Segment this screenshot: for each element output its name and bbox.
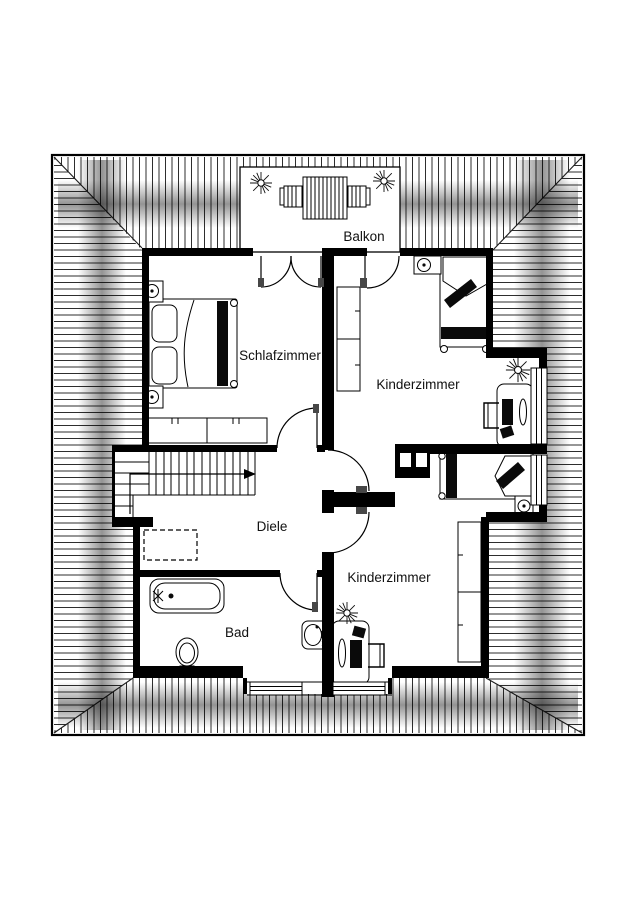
- wall-top-left: [142, 248, 253, 256]
- wall-right-upper: [486, 248, 493, 353]
- wall-niche: [334, 492, 395, 507]
- room-label-bedroom: Schlafzimmer: [239, 348, 321, 363]
- bathtub: [150, 579, 224, 613]
- room-label-balcony: Balkon: [343, 229, 384, 244]
- shelf: [337, 287, 360, 391]
- wall-center-lower: [322, 552, 334, 670]
- desk-top-room: [497, 384, 533, 447]
- wall-bath-top: [133, 570, 280, 577]
- single-bed-top: [440, 254, 490, 353]
- room-label-kids-room-top: Kinderzimmer: [376, 377, 460, 392]
- floor-plan-drawing: Balkon Schlafzimmer Kinderzimmer Diele K…: [0, 0, 636, 900]
- room-label-hallway: Diele: [257, 519, 288, 534]
- wall-stair-left: [112, 445, 115, 525]
- wall-bath-left: [133, 517, 140, 678]
- wall-bath-bottom: [133, 666, 243, 678]
- radiator: [414, 256, 441, 274]
- window: [250, 682, 302, 695]
- window: [531, 368, 547, 444]
- tub-drain: [169, 594, 174, 599]
- wall-kids-divider: [430, 444, 547, 454]
- wall-top-right: [400, 248, 493, 256]
- window: [531, 455, 547, 505]
- single-bed-bottom: [439, 453, 533, 499]
- double-bed: [149, 299, 238, 388]
- balcony-chair-right: [348, 186, 370, 207]
- wall-recess-right-stub: [388, 678, 392, 694]
- wall-bedroom-bottom: [112, 445, 277, 452]
- chimney: [395, 444, 430, 478]
- wall-kids-bottom: [392, 666, 489, 678]
- balcony-chair-left: [280, 186, 302, 207]
- floor-plan-page: Balkon Schlafzimmer Kinderzimmer Diele K…: [0, 0, 636, 900]
- wardrobe: [148, 418, 267, 443]
- wall-bay-a: [539, 358, 547, 368]
- wall-center-mid: [322, 490, 334, 513]
- wall-recess-left-stub: [243, 678, 247, 694]
- wall-stair-bottom: [112, 517, 153, 527]
- room-label-kids-room-bottom: Kinderzimmer: [347, 570, 431, 585]
- wall-bay-step-top: [486, 348, 547, 358]
- room-label-bathroom: Bad: [225, 625, 249, 640]
- wall-bay-step-bottom: [486, 512, 547, 522]
- shelf: [458, 522, 481, 662]
- wall-bedroom-left: [142, 248, 149, 452]
- balcony-table: [303, 177, 347, 219]
- pillow: [152, 347, 177, 384]
- wall-right-lower: [481, 517, 489, 677]
- window: [333, 682, 385, 695]
- pillow: [152, 305, 177, 342]
- desk-bottom-room: [332, 621, 369, 684]
